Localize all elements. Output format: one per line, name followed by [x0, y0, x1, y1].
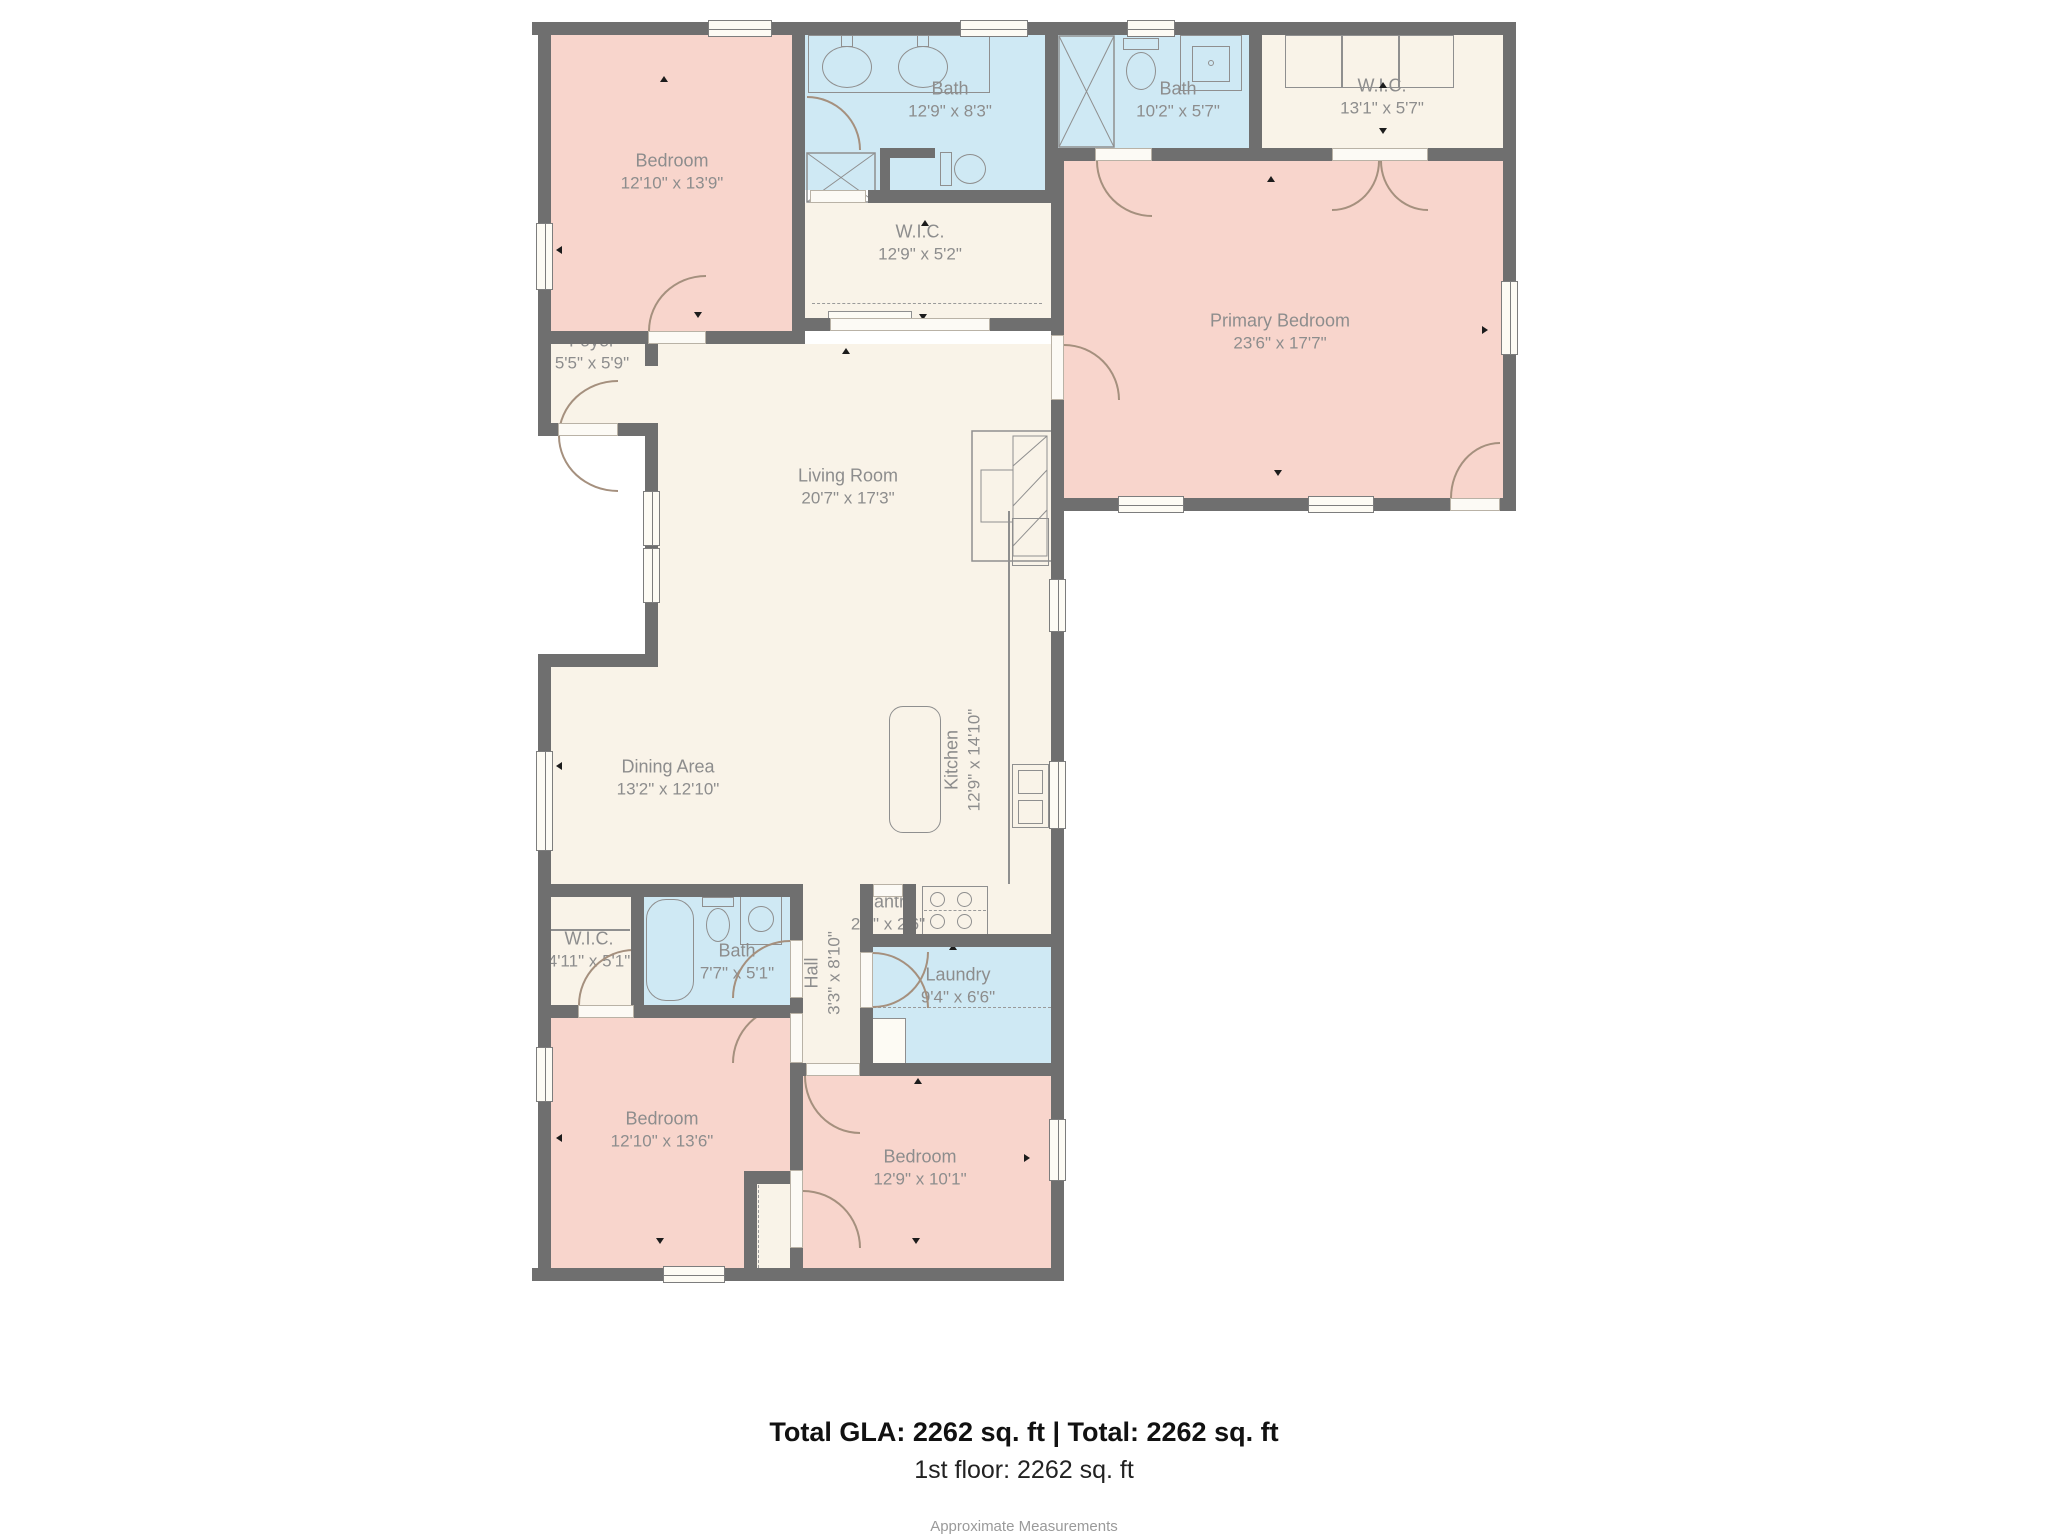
burner-icon — [957, 892, 972, 907]
arrow-marker — [556, 246, 562, 254]
room-label-wic-middle: W.I.C. 12'9" x 5'2" — [878, 219, 962, 266]
footer: Total GLA: 2262 sq. ft | Total: 2262 sq.… — [0, 1417, 2048, 1535]
room-name: W.I.C. — [548, 926, 631, 950]
sink-icon — [1018, 800, 1043, 824]
room-name: Kitchen — [939, 709, 963, 812]
room-dims: 12'10" x 13'9" — [621, 173, 724, 196]
room-dims: 12'10" x 13'6" — [611, 1131, 714, 1154]
window — [1118, 496, 1184, 513]
window — [643, 491, 660, 546]
room-dims: 13'1" x 5'7" — [1340, 98, 1424, 121]
wall — [538, 331, 648, 344]
faucet-icon — [917, 33, 929, 47]
room-label-bedroom-bottom-left: Bedroom 12'10" x 13'6" — [611, 1106, 714, 1153]
wall — [990, 318, 1051, 331]
arrow-marker — [921, 220, 929, 226]
room-name: Bath — [908, 76, 992, 100]
door-opening — [790, 1170, 803, 1248]
wall — [1249, 22, 1262, 161]
door-opening — [1095, 148, 1152, 161]
window — [536, 223, 553, 290]
door-opening — [558, 423, 618, 436]
arrow-marker — [1482, 326, 1488, 334]
door-opening — [1450, 498, 1500, 511]
arrow-marker — [914, 1078, 922, 1084]
wall — [634, 1005, 803, 1018]
room-dims: 13'2" x 12'10" — [617, 779, 720, 802]
room-label-primary-bedroom: Primary Bedroom 23'6" x 17'7" — [1210, 308, 1350, 355]
dashed-line — [924, 910, 986, 911]
wall — [790, 1063, 806, 1076]
door-opening — [578, 1005, 634, 1018]
wall — [860, 934, 1064, 947]
wall — [538, 654, 658, 667]
room-name: Dining Area — [617, 754, 720, 778]
floor-plan-canvas: Bedroom 12'10" x 13'9" Bath 12'9" x 8'3"… — [0, 0, 2048, 1536]
door-opening — [806, 1063, 860, 1076]
wall — [1503, 22, 1516, 511]
room-living-kitchen — [658, 344, 1051, 884]
window — [536, 1047, 553, 1102]
toilet-icon — [954, 154, 986, 184]
door-opening — [860, 952, 873, 1008]
wall — [744, 1171, 757, 1281]
door-opening — [790, 940, 803, 998]
room-name: Laundry — [921, 962, 995, 986]
approximate-note: Approximate Measurements — [0, 1518, 2048, 1535]
window — [1501, 281, 1518, 355]
wall — [1051, 148, 1095, 161]
window — [1049, 761, 1066, 829]
door-opening — [648, 331, 706, 344]
burner-icon — [930, 914, 945, 929]
wall — [790, 1248, 803, 1281]
wall — [792, 318, 830, 331]
room-label-kitchen: Kitchen 12'9" x 14'10" — [939, 709, 986, 812]
door-opening — [1332, 148, 1428, 161]
window — [643, 548, 660, 603]
arrow-marker — [556, 1134, 562, 1142]
arrow-marker — [656, 1238, 664, 1244]
sink-icon — [822, 46, 872, 88]
wall — [538, 654, 551, 1281]
door-opening — [830, 318, 990, 331]
room-dims: 5'5" x 5'9" — [555, 353, 629, 376]
arrow-marker — [1024, 1154, 1030, 1162]
window — [536, 751, 553, 851]
room-name: Bath — [1136, 76, 1220, 100]
room-label-bath-top-right: Bath 10'2" x 5'7" — [1136, 76, 1220, 123]
cabinet — [1285, 35, 1342, 88]
room-label-hall: Hall 3'3" x 8'10" — [799, 931, 846, 1015]
window — [1127, 20, 1175, 37]
room-dims: 12'9" x 8'3" — [908, 101, 992, 124]
toilet-icon — [706, 908, 730, 942]
arrow-marker — [556, 762, 562, 770]
counter-edge — [1008, 511, 1010, 884]
floor-area-text: 1st floor: 2262 sq. ft — [0, 1456, 2048, 1485]
door-arc — [558, 436, 618, 492]
room-dims: 20'7" x 17'3" — [798, 488, 898, 511]
burner-icon — [957, 914, 972, 929]
room-name: Living Room — [798, 463, 898, 487]
arrow-marker — [1379, 128, 1387, 134]
shower-icon — [1058, 35, 1115, 148]
room-label-bedroom-top-left: Bedroom 12'10" x 13'9" — [621, 148, 724, 195]
room-dims: 12'9" x 14'10" — [964, 709, 987, 812]
room-label-laundry: Laundry 9'4" x 6'6" — [921, 962, 995, 1009]
room-dims: 9'4" x 6'6" — [921, 987, 995, 1010]
arrow-marker — [842, 348, 850, 354]
wall — [1428, 148, 1516, 161]
window — [960, 20, 1028, 37]
door-opening — [790, 1013, 803, 1063]
wall — [1051, 400, 1064, 511]
window — [663, 1266, 725, 1283]
arrow-marker — [660, 76, 668, 82]
wall — [790, 897, 803, 940]
room-label-bath-top-left: Bath 12'9" x 8'3" — [908, 76, 992, 123]
dashed-line — [812, 303, 1042, 304]
total-area-text: Total GLA: 2262 sq. ft | Total: 2262 sq.… — [0, 1417, 2048, 1448]
room-dims: 12'9" x 5'2" — [878, 244, 962, 267]
wall — [706, 331, 805, 344]
dashed-line — [758, 1180, 759, 1278]
appliance — [1012, 518, 1049, 566]
kitchen-island — [889, 706, 941, 833]
room-label-bedroom-bottom-right: Bedroom 12'9" x 10'1" — [873, 1144, 966, 1191]
wall — [538, 884, 803, 897]
window — [1308, 496, 1374, 513]
window — [1049, 579, 1066, 632]
arrow-marker — [912, 1238, 920, 1244]
room-label-dining-area: Dining Area 13'2" x 12'10" — [617, 754, 720, 801]
door-opening — [810, 190, 866, 203]
arrow-marker — [1267, 176, 1275, 182]
drain-icon — [748, 906, 774, 932]
room-name: Bedroom — [873, 1144, 966, 1168]
faucet-icon — [841, 33, 853, 47]
room-dims: 12'9" x 10'1" — [873, 1169, 966, 1192]
drain-icon — [1208, 60, 1214, 66]
burner-icon — [930, 892, 945, 907]
wall — [631, 884, 644, 1018]
wall — [880, 148, 890, 203]
wall — [1051, 161, 1064, 335]
wall — [1152, 148, 1332, 161]
wall — [538, 1005, 578, 1018]
room-name: Hall — [799, 931, 823, 1015]
wall — [868, 190, 1051, 203]
room-dims: 23'6" x 17'7" — [1210, 333, 1350, 356]
arrow-marker — [1379, 82, 1387, 88]
toilet-icon — [702, 897, 734, 907]
window — [1049, 1119, 1066, 1181]
bathtub-icon — [646, 899, 694, 1001]
sink-icon — [1018, 770, 1043, 794]
room-name: Bedroom — [611, 1106, 714, 1130]
room-name: Bedroom — [621, 148, 724, 172]
wall — [860, 1063, 1064, 1076]
room-dims: 10'2" x 5'7" — [1136, 101, 1220, 124]
room-closet — [757, 1184, 790, 1281]
arrow-marker — [1274, 470, 1282, 476]
wall — [790, 1063, 803, 1170]
door-opening — [1051, 335, 1064, 400]
toilet-icon — [1123, 38, 1159, 50]
window — [708, 20, 772, 37]
wall — [792, 22, 805, 344]
door-opening — [873, 884, 903, 897]
room-name: Primary Bedroom — [1210, 308, 1350, 332]
toilet-icon — [940, 152, 952, 186]
room-label-living-room: Living Room 20'7" x 17'3" — [798, 463, 898, 510]
room-name: W.I.C. — [878, 219, 962, 243]
room-label-wic-top-right: W.I.C. 13'1" x 5'7" — [1340, 73, 1424, 120]
room-dims: 3'3" x 8'10" — [824, 931, 847, 1015]
wall — [618, 423, 658, 436]
